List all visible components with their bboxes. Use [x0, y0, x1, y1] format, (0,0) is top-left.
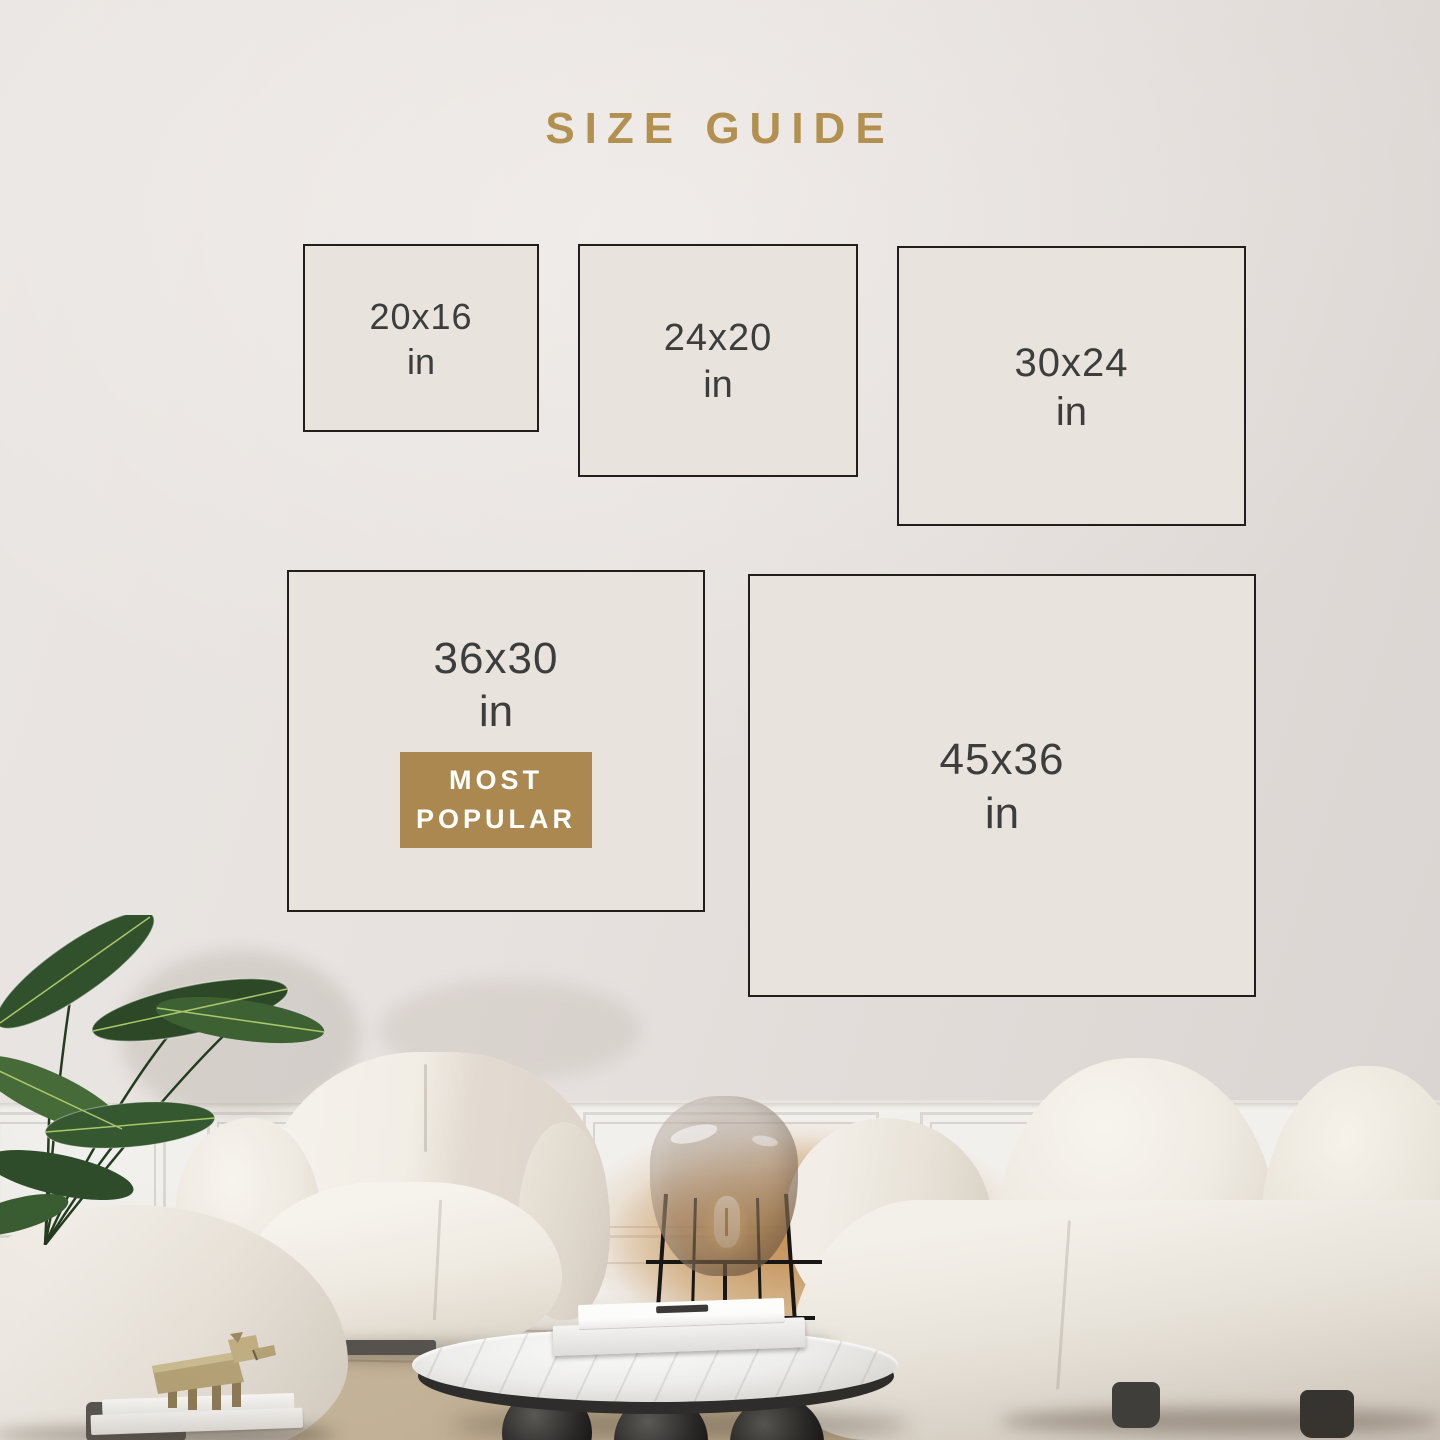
- size-unit: in: [407, 344, 435, 380]
- plant-leaves: [0, 915, 327, 1245]
- size-label: 20x16: [369, 296, 472, 337]
- floor-lamp-glass: [650, 1096, 798, 1276]
- size-frame-20x16: 20x16 in: [303, 244, 539, 432]
- sofa-foot: [1300, 1390, 1354, 1438]
- size-frame-45x36: 45x36 in: [748, 574, 1256, 997]
- badge-line-1: MOST: [416, 761, 576, 800]
- sofa-foot: [1112, 1382, 1160, 1428]
- size-frame-24x20: 24x20 in: [578, 244, 858, 477]
- size-label: 30x24: [1015, 340, 1129, 386]
- size-label: 24x20: [664, 317, 773, 361]
- size-unit: in: [479, 690, 513, 734]
- armchair-back-seam: [424, 1064, 427, 1152]
- size-label: 36x30: [434, 634, 559, 685]
- size-unit: in: [703, 366, 733, 404]
- glass-highlight: [669, 1120, 719, 1147]
- sofa-under-shadow: [1000, 1408, 1440, 1434]
- size-frame-30x24: 30x24 in: [897, 246, 1246, 526]
- size-unit: in: [985, 792, 1019, 836]
- badge-line-2: POPULAR: [416, 800, 576, 839]
- book-clasp: [656, 1305, 708, 1314]
- dog-figurine: [140, 1332, 280, 1422]
- potted-plant: [0, 915, 360, 1245]
- most-popular-badge: MOST POPULAR: [400, 752, 592, 848]
- size-frame-36x30: 36x30 in MOST POPULAR: [287, 570, 705, 912]
- size-guide-title: SIZE GUIDE: [0, 104, 1440, 154]
- size-unit: in: [1056, 392, 1087, 432]
- armchair-base-bar: [344, 1340, 436, 1355]
- size-label: 45x36: [940, 735, 1065, 786]
- size-guide-image: SIZE GUIDE 20x16 in 24x20 in 30x24 in 36…: [0, 0, 1440, 1440]
- glass-highlight: [751, 1134, 778, 1148]
